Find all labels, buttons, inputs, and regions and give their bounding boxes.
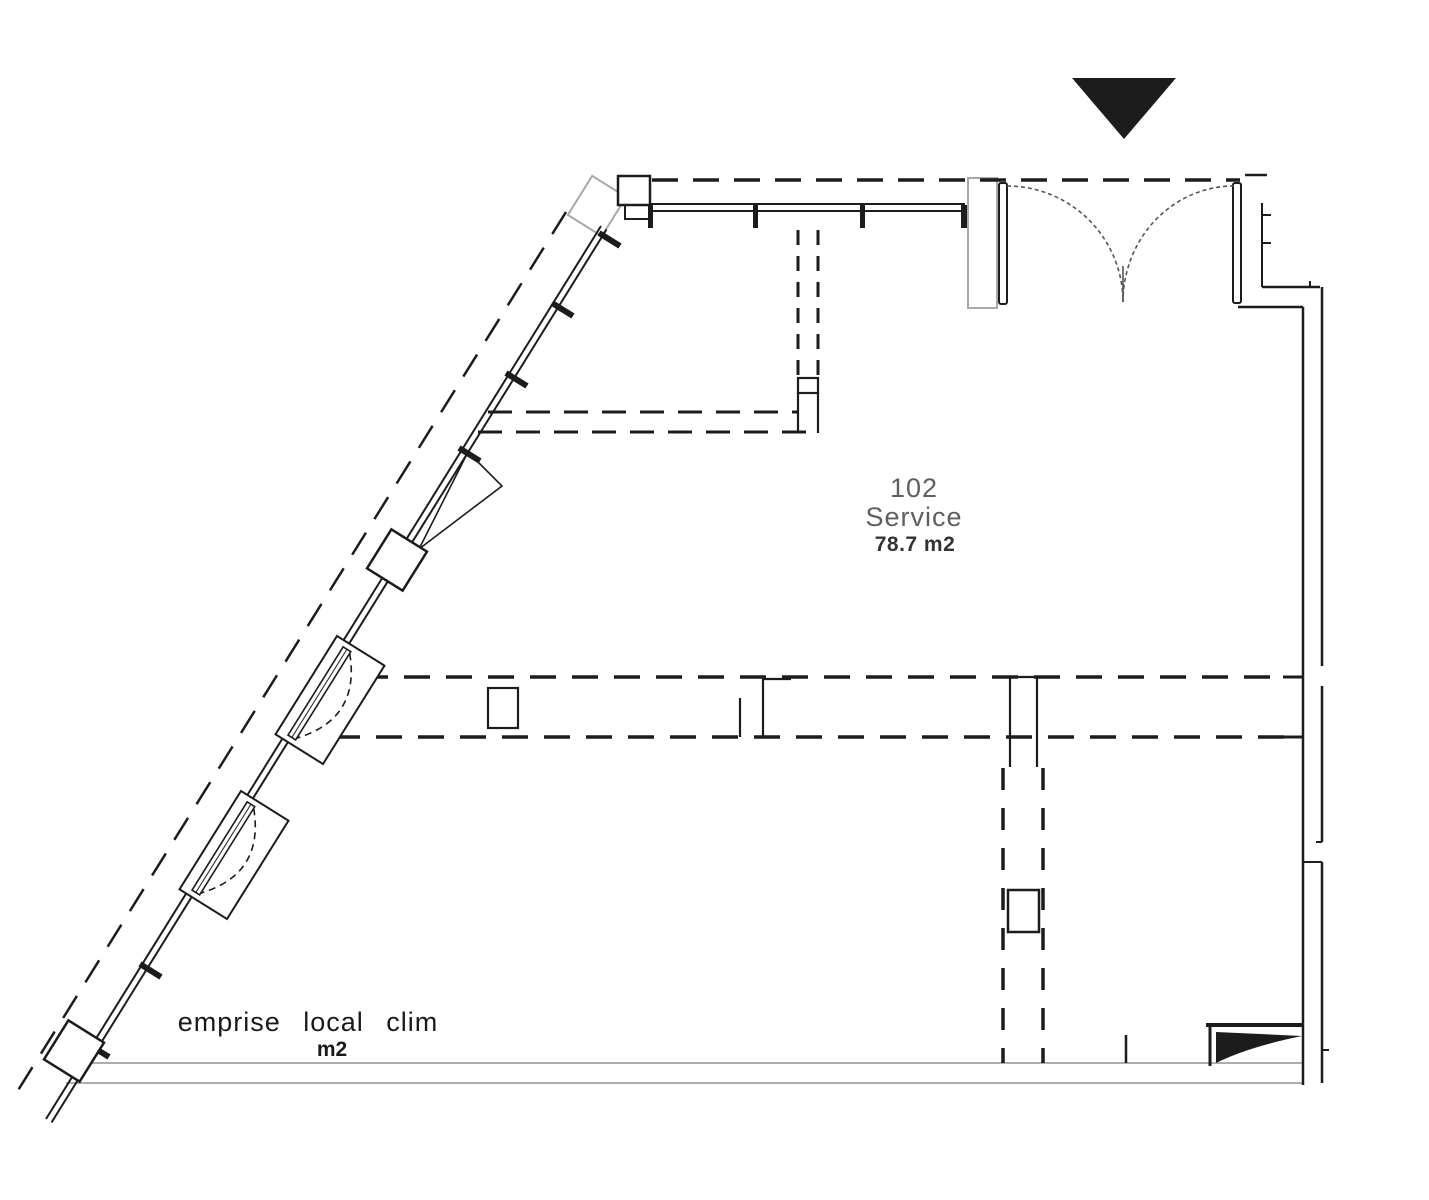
site-boundary-gray-lines bbox=[66, 1063, 1303, 1083]
clim-annotation: emprise local clim m2 bbox=[178, 1007, 439, 1061]
interior-partition-solids bbox=[488, 378, 1126, 1063]
door-jamb-left bbox=[999, 183, 1007, 304]
facade-window-assembly-upper bbox=[276, 636, 385, 764]
corner-ramp-symbol bbox=[1206, 1025, 1303, 1066]
entrance-pier bbox=[968, 178, 997, 308]
clim-annotation-text: emprise local clim bbox=[178, 1007, 439, 1037]
right-wall bbox=[1238, 175, 1329, 1085]
partition-dashed-lines bbox=[12, 180, 1303, 1100]
facade-ticks bbox=[88, 233, 620, 1057]
floor-plan-canvas: 102 Service 78.7 m2 emprise local clim m… bbox=[0, 0, 1429, 1200]
facade-column-lower bbox=[44, 1020, 104, 1081]
room-area: 78.7 m2 bbox=[875, 533, 956, 556]
corner-column bbox=[618, 176, 652, 219]
room-label: 102 Service 78.7 m2 bbox=[865, 473, 962, 556]
clim-annotation-unit: m2 bbox=[317, 1038, 347, 1061]
entrance-double-door bbox=[999, 183, 1241, 304]
door-swing-arcs bbox=[1007, 186, 1234, 302]
top-window-wall bbox=[650, 204, 965, 211]
room-number: 102 bbox=[890, 473, 938, 503]
facade-column-upper bbox=[367, 529, 427, 590]
facade-window-assembly-lower bbox=[180, 791, 289, 919]
door-jamb-right bbox=[1233, 183, 1241, 303]
room-name: Service bbox=[865, 502, 962, 532]
entrance-arrow-icon bbox=[1072, 78, 1176, 139]
top-wall-mullions bbox=[648, 205, 967, 228]
floor-plan-drawing: 102 Service 78.7 m2 emprise local clim m… bbox=[0, 0, 1429, 1200]
